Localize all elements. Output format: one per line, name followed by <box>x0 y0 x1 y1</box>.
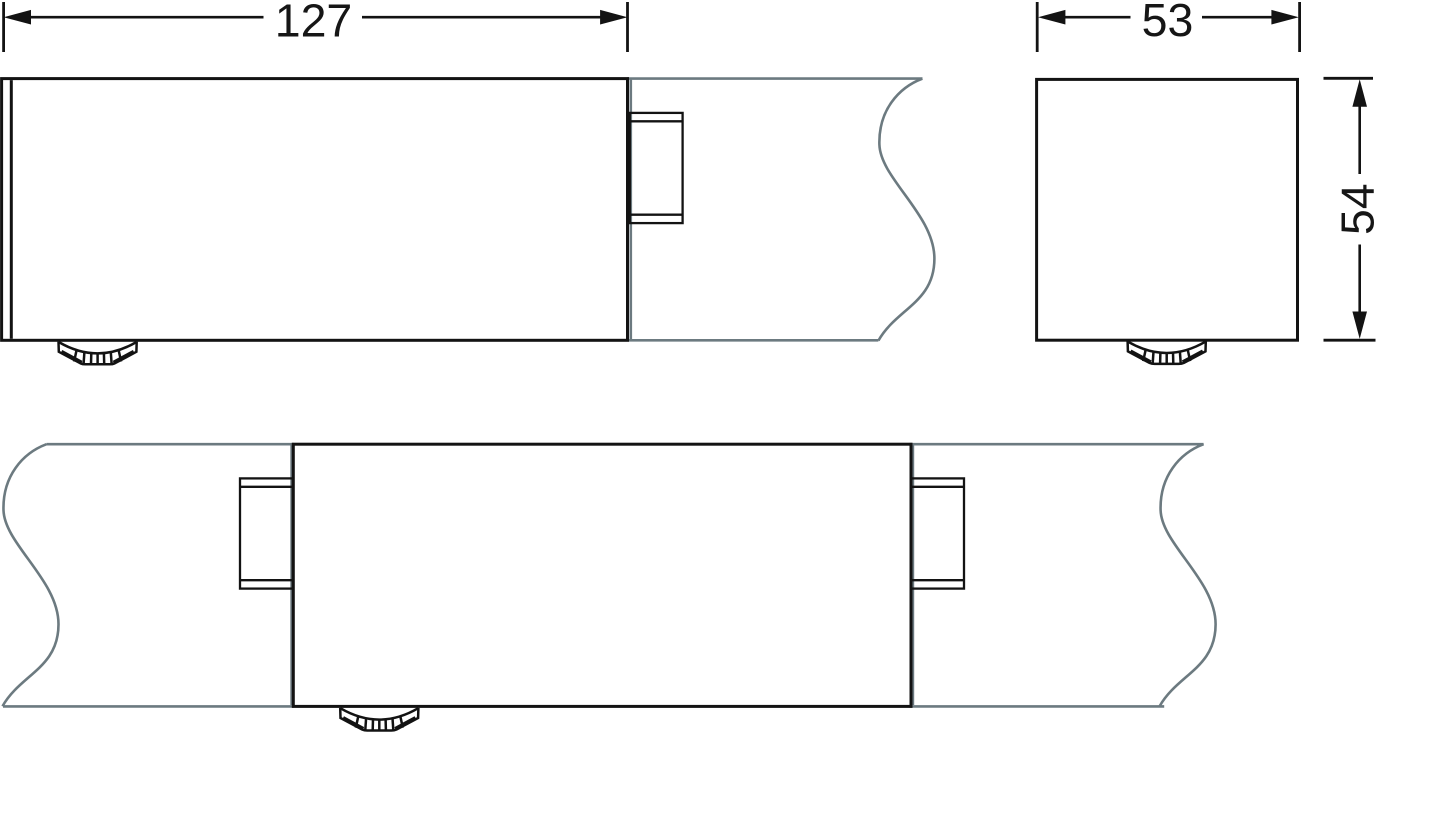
svg-text:54: 54 <box>1332 183 1384 235</box>
svg-text:53: 53 <box>1142 0 1194 46</box>
svg-text:127: 127 <box>275 0 353 46</box>
